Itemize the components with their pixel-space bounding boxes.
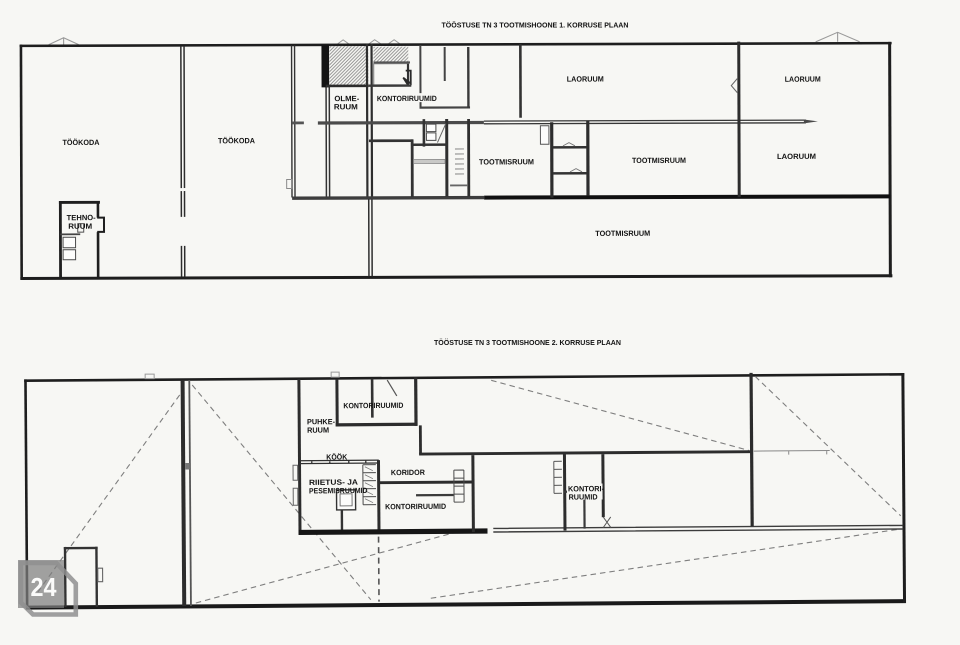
svg-text:TÖÖKODA: TÖÖKODA <box>218 136 256 145</box>
svg-text:PESEMISRUUMID: PESEMISRUUMID <box>309 486 368 495</box>
svg-text:RUUM: RUUM <box>68 222 92 231</box>
svg-text:TOOTMISRUUM: TOOTMISRUUM <box>632 156 686 165</box>
svg-text:RUUMID: RUUMID <box>569 492 599 501</box>
svg-text:TÖÖSTUSE TN 3 TOOTMISHOONE 2.: TÖÖSTUSE TN 3 TOOTMISHOONE 2. KORRUSE PL… <box>434 338 621 347</box>
svg-text:TOOTMISRUUM: TOOTMISRUUM <box>479 157 534 166</box>
svg-text:LAORUUM: LAORUUM <box>567 75 604 84</box>
svg-text:KONTORIRUUMID: KONTORIRUUMID <box>377 94 438 103</box>
svg-text:KORIDOR: KORIDOR <box>391 468 426 477</box>
svg-text:TÖÖSTUSE TN 3 TOOTMISHOONE 1.: TÖÖSTUSE TN 3 TOOTMISHOONE 1. KORRUSE PL… <box>442 21 629 30</box>
svg-text:LAORUUM: LAORUUM <box>777 152 816 161</box>
svg-text:LAORUUM: LAORUUM <box>785 75 821 84</box>
svg-text:KONTORIRUUMID: KONTORIRUUMID <box>385 502 447 511</box>
svg-text:KÖÖK: KÖÖK <box>326 452 348 461</box>
svg-text:TOOTMISRUUM: TOOTMISRUUM <box>595 229 650 238</box>
svg-text:RUUM: RUUM <box>307 426 329 435</box>
svg-text:KONTORIRUUMID: KONTORIRUUMID <box>343 401 404 410</box>
svg-text:TÖÖKODA: TÖÖKODA <box>62 138 100 147</box>
svg-text:24: 24 <box>31 572 57 602</box>
svg-text:RUUM: RUUM <box>334 102 358 111</box>
